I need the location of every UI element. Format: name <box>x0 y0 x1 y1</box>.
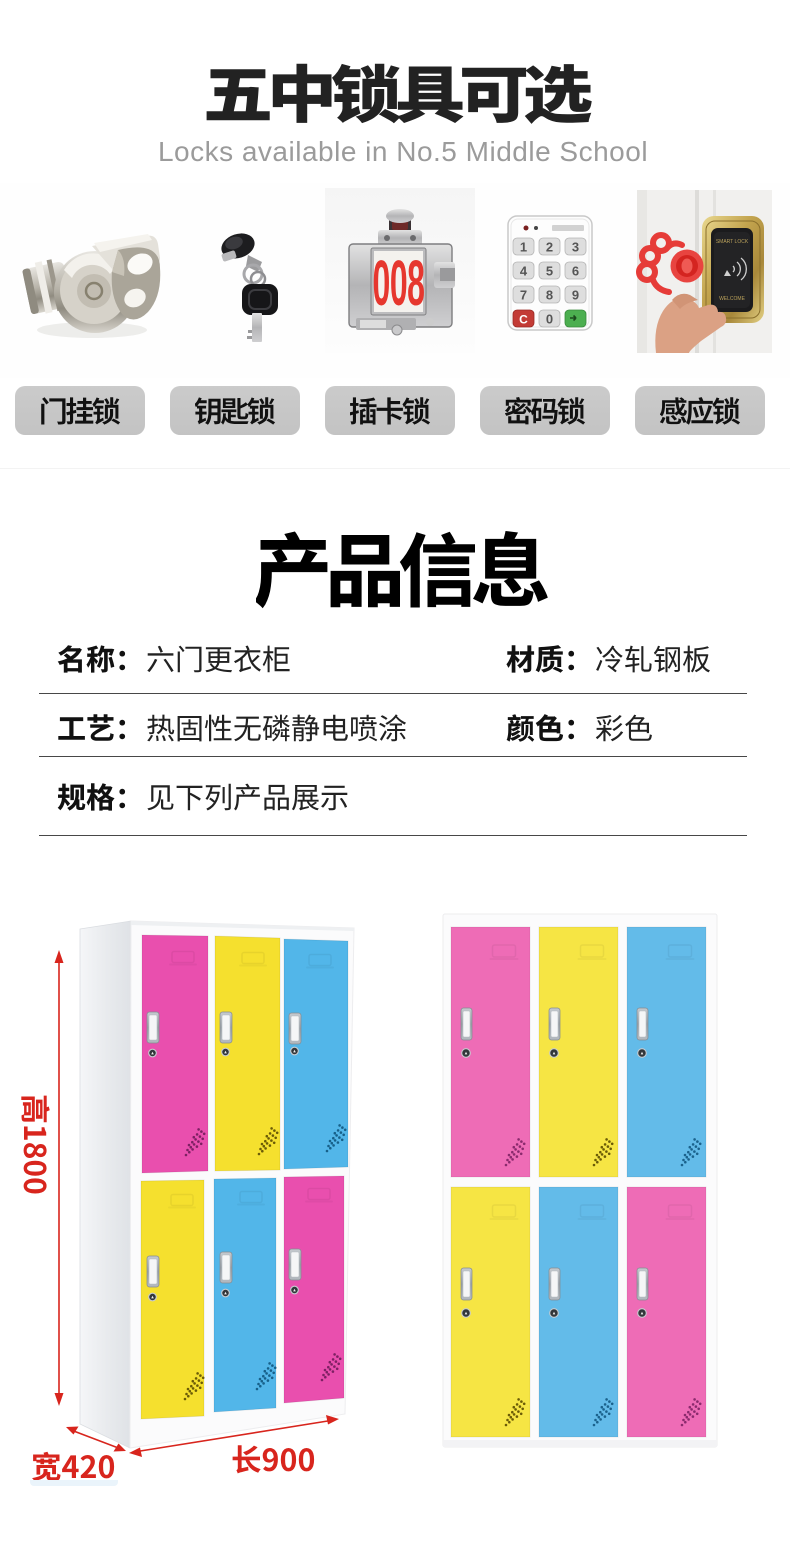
svg-text:WELCOME: WELCOME <box>719 296 746 302</box>
svg-text:0: 0 <box>546 312 553 327</box>
svg-text:2: 2 <box>546 240 553 255</box>
svg-text:008: 008 <box>373 247 425 319</box>
svg-text:3: 3 <box>572 240 579 255</box>
svg-text:SMART LOCK: SMART LOCK <box>716 239 749 245</box>
svg-text:9: 9 <box>572 288 579 303</box>
svg-text:1: 1 <box>520 240 527 255</box>
svg-text:8: 8 <box>546 288 553 303</box>
svg-text:7: 7 <box>520 288 527 303</box>
svg-text:4: 4 <box>520 264 528 279</box>
svg-text:C: C <box>519 313 528 327</box>
svg-text:6: 6 <box>572 264 579 279</box>
svg-text:5: 5 <box>546 264 553 279</box>
